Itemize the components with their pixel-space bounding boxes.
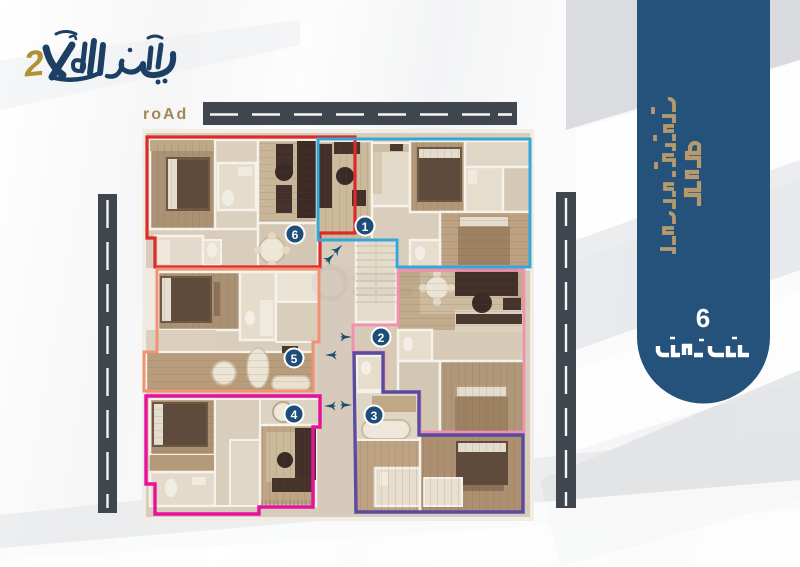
svg-text:4: 4: [291, 408, 298, 422]
svg-text:3: 3: [371, 409, 378, 423]
svg-text:roAd: roAd: [143, 106, 188, 123]
svg-text:1: 1: [362, 220, 369, 234]
svg-text:2: 2: [378, 331, 385, 345]
svg-text:5: 5: [291, 352, 298, 366]
svg-text:6: 6: [292, 228, 299, 242]
svg-text:2: 2: [21, 42, 46, 85]
svg-text:6: 6: [696, 303, 710, 333]
